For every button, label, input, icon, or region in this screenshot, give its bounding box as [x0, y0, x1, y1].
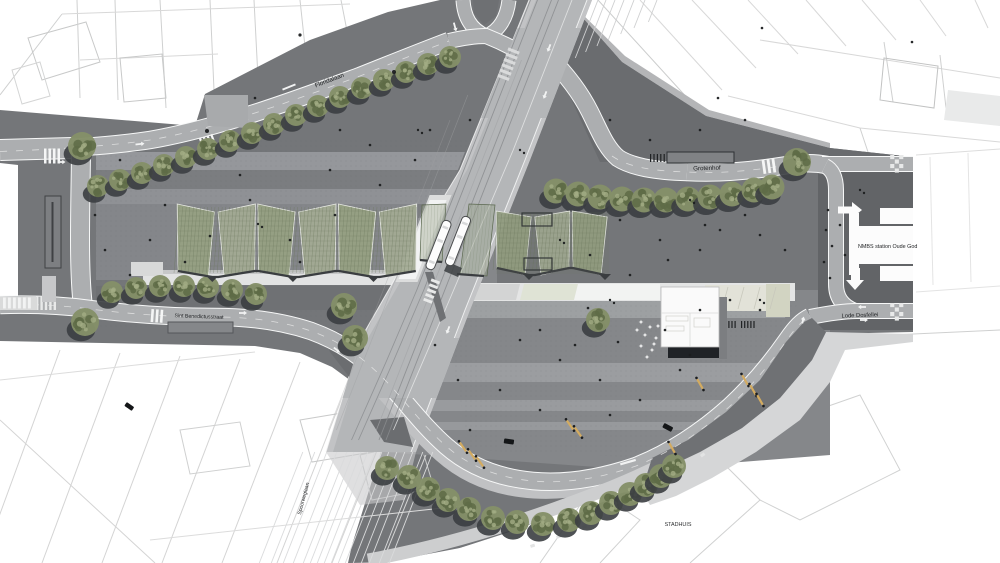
svg-text:STADHUIS: STADHUIS: [665, 522, 692, 528]
svg-text:Lode Dosfellei: Lode Dosfellei: [841, 312, 878, 319]
svg-text:Grotenhof: Grotenhof: [693, 165, 721, 173]
svg-text:NMBS station Oude God: NMBS station Oude God: [858, 244, 917, 250]
